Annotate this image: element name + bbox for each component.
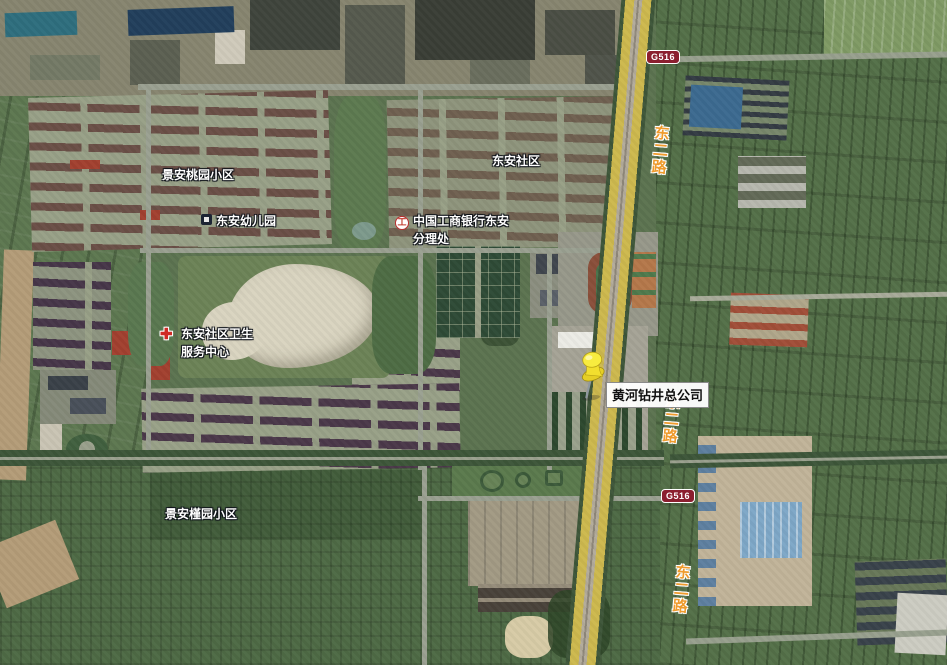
poi-label-bank-line2[interactable]: 分理处 [413, 230, 449, 247]
residential-cluster-west [33, 262, 111, 370]
road-top [138, 84, 632, 90]
satellite-map[interactable]: 景安桃园小区 东安幼儿园 东安社区 工 中国工商银行东安 分理处 ✚ 东安社区卫… [0, 0, 947, 665]
pushpin-icon [575, 350, 615, 402]
road-label-dongerlu-top: 东二路 [647, 124, 672, 177]
poi-label-kindergarten[interactable]: 东安幼儿园 [216, 212, 276, 229]
road-bottom [418, 496, 664, 501]
road-vertical-3 [547, 252, 552, 470]
village-top [0, 0, 632, 96]
highway-badge-g516-bottom: G516 [661, 489, 695, 503]
basketball-courts [632, 252, 656, 308]
bank-icon: 工 [395, 216, 409, 230]
road-middle [140, 248, 632, 253]
school-compound [40, 370, 116, 424]
area-label-dongan-shequ[interactable]: 东安社区 [492, 152, 540, 169]
poi-label-health-line1[interactable]: 东安社区卫生 [181, 325, 253, 342]
map-pin-huanghe[interactable] [575, 350, 615, 402]
small-pond [352, 222, 376, 240]
poi-label-health-line2[interactable]: 服务中心 [181, 343, 229, 360]
area-label-taoyuan[interactable]: 景安桃园小区 [162, 166, 234, 183]
highway-badge-g516-top: G516 [646, 50, 680, 64]
pond-dark [128, 6, 235, 36]
tree-patch [372, 256, 436, 374]
road-vertical-2 [418, 90, 423, 470]
green-strip [128, 262, 174, 366]
garden-grid [436, 246, 520, 338]
hospital-cross-icon: ✚ [160, 327, 176, 343]
garden-hedge [545, 470, 563, 486]
fields-top-right [824, 0, 947, 56]
kindergarten-icon [201, 214, 212, 225]
red-roof-building [70, 160, 100, 169]
gray-buildings [738, 156, 806, 208]
road-vertical-1 [146, 90, 151, 462]
garden-ring [480, 470, 504, 492]
sand-patch [505, 616, 553, 658]
poi-label-bank-line1[interactable]: 中国工商银行东安 [413, 212, 509, 229]
blue-roof-large [689, 85, 743, 130]
blue-warehouse [740, 502, 802, 558]
area-label-jinyuan[interactable]: 景安槿园小区 [165, 505, 237, 522]
poi-label-huanghe-company[interactable]: 黄河钻井总公司 [606, 382, 709, 408]
pond-teal [5, 11, 78, 37]
white-building-large [894, 593, 947, 656]
tree-lined-road [0, 450, 664, 466]
road-label-dongerlu-bottom: 东二路 [668, 563, 693, 616]
garden-ring [515, 472, 531, 488]
orange-roof-rows [729, 293, 809, 348]
